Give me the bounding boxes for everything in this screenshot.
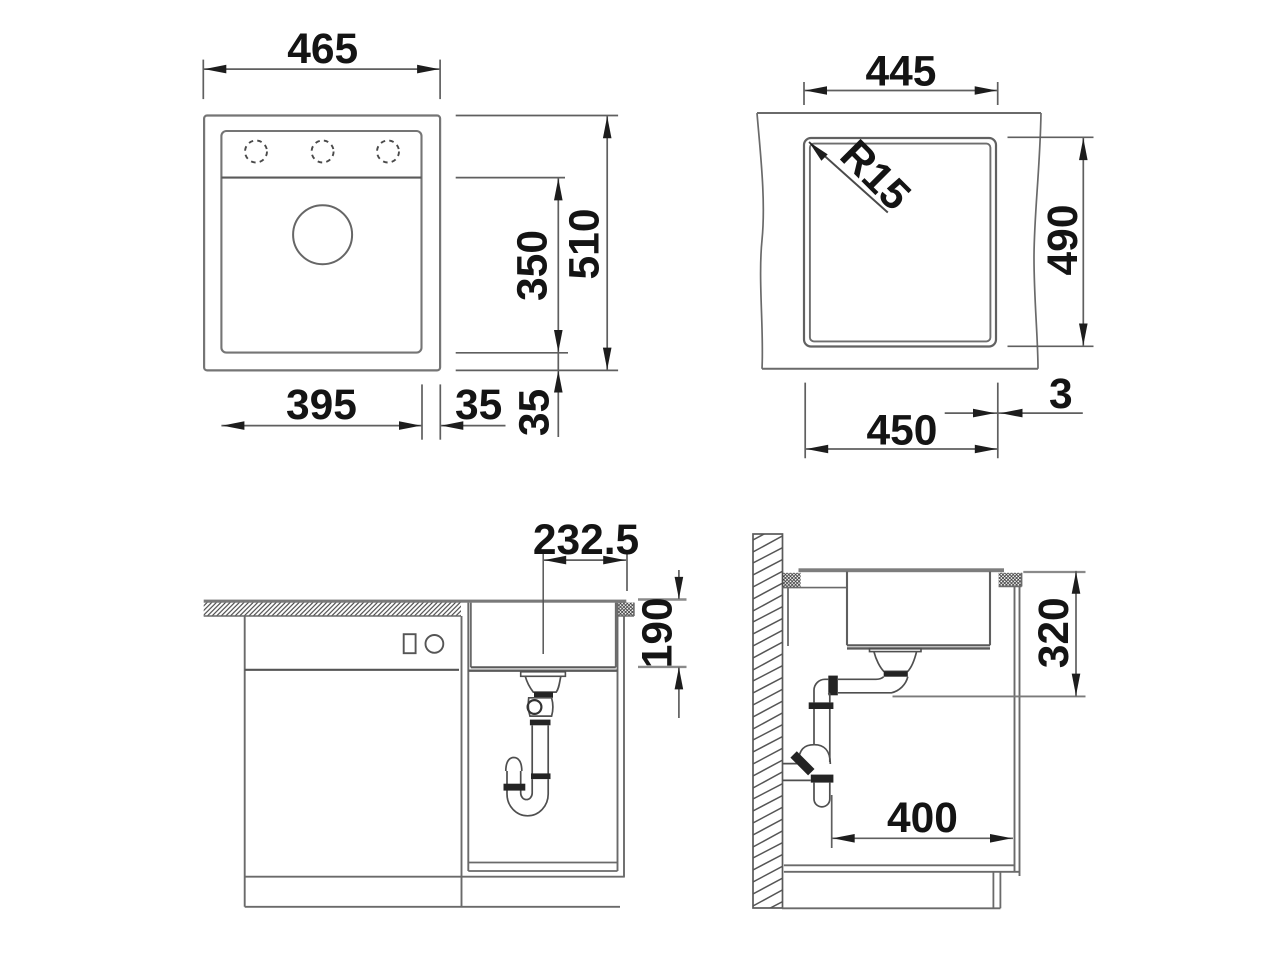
svg-text:465: 465 xyxy=(287,26,358,73)
svg-text:400: 400 xyxy=(887,795,958,842)
svg-text:350: 350 xyxy=(510,230,557,301)
svg-text:35: 35 xyxy=(512,389,559,436)
svg-text:190: 190 xyxy=(635,597,682,668)
svg-text:3: 3 xyxy=(1049,371,1073,418)
svg-text:510: 510 xyxy=(561,209,608,280)
svg-text:450: 450 xyxy=(867,408,938,455)
svg-text:35: 35 xyxy=(455,382,502,429)
svg-text:490: 490 xyxy=(1040,205,1087,276)
svg-text:232.5: 232.5 xyxy=(533,517,639,564)
svg-text:445: 445 xyxy=(866,49,937,96)
svg-text:395: 395 xyxy=(286,382,357,429)
svg-text:320: 320 xyxy=(1031,597,1078,668)
